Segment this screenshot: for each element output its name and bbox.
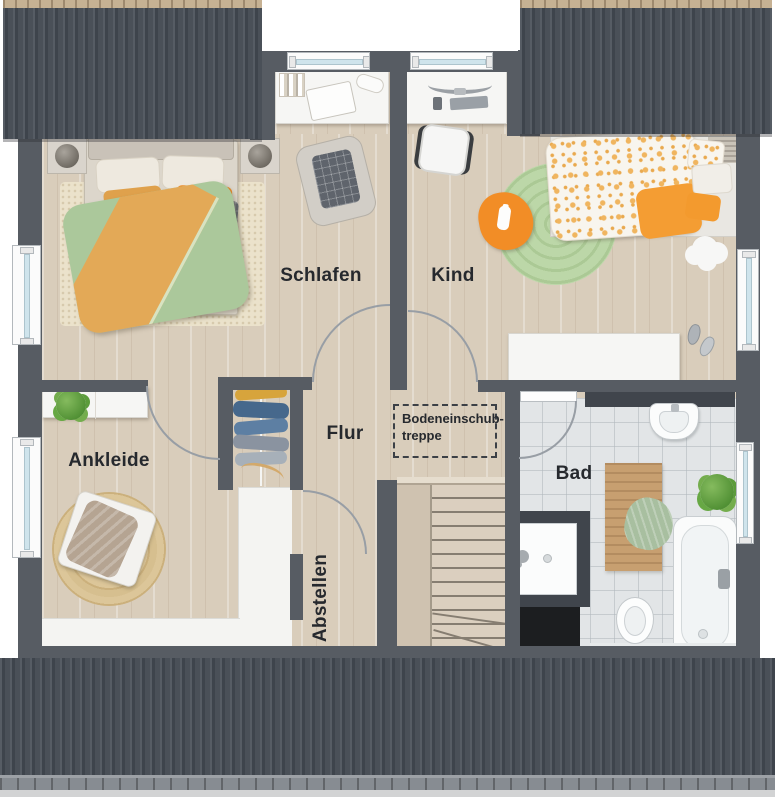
sink-tap xyxy=(671,404,679,412)
kids-pillow-orange xyxy=(684,192,721,222)
window-glass xyxy=(419,59,486,65)
window-cap xyxy=(742,344,756,351)
window-bad-right xyxy=(736,442,754,544)
window-glass xyxy=(743,451,748,537)
roof-top-left xyxy=(3,8,262,139)
wall-flur-left-lower xyxy=(290,554,303,620)
window-dormer-schlafen xyxy=(287,52,370,70)
window-cap xyxy=(20,338,34,345)
attic-hatch-line2: treppe xyxy=(402,428,495,445)
window-cap xyxy=(412,56,419,68)
roof-bottom xyxy=(0,658,775,775)
room-label-schlafen: Schlafen xyxy=(280,265,362,287)
floorplan: Schlafen Kind Flur Ankleide Abstellen Ba… xyxy=(0,0,775,797)
roof-shadow-right xyxy=(520,134,772,137)
kids-pillow-white xyxy=(691,163,733,196)
window-cap xyxy=(20,439,34,446)
window-cap xyxy=(486,56,493,68)
table-lamp-right xyxy=(248,144,272,168)
clothes-item-navy xyxy=(233,401,290,420)
bathtub-faucet xyxy=(718,569,730,589)
window-kind-right xyxy=(737,249,759,351)
window-cap xyxy=(739,537,752,544)
sink xyxy=(649,403,699,440)
kids-dresser xyxy=(508,333,680,382)
attic-hatch-line1: Bodeneinschub- xyxy=(402,411,495,428)
roof-bottom-edge xyxy=(0,790,775,797)
window-cap xyxy=(20,551,34,558)
window-cap xyxy=(739,444,752,451)
roof-ridge xyxy=(0,778,775,790)
desk-chair xyxy=(417,123,471,177)
window-glass xyxy=(296,59,363,65)
phone xyxy=(433,97,442,110)
room-label-flur: Flur xyxy=(326,423,363,445)
window-dormer-kind xyxy=(410,52,493,70)
knee-wall-storage-vertical xyxy=(238,487,292,658)
desk-books xyxy=(279,73,305,97)
bathtub xyxy=(673,516,737,658)
table-lamp-left xyxy=(55,144,79,168)
outer-wall-right xyxy=(736,132,760,660)
sink-basin xyxy=(659,411,689,433)
stairs-top-rail xyxy=(397,477,512,485)
room-label-abstellen: Abstellen xyxy=(310,554,332,642)
window-cap xyxy=(20,247,34,254)
window-cap xyxy=(742,251,756,258)
outer-wall-left xyxy=(18,130,42,660)
wall-flur-left xyxy=(290,377,303,490)
stairs-stringer xyxy=(397,485,432,658)
wall-stairs-left xyxy=(377,480,397,658)
attic-hatch-label-box: Bodeneinschub- treppe xyxy=(393,404,497,458)
wall-ankleide-top xyxy=(40,380,148,392)
window-glass xyxy=(24,254,30,338)
dormer-sky-cut xyxy=(262,0,518,51)
roof-top-right xyxy=(520,8,772,134)
cloud-side-table xyxy=(692,236,718,262)
window-schlafen-left xyxy=(12,245,41,345)
room-label-bad: Bad xyxy=(556,463,593,485)
window-glass xyxy=(24,447,30,550)
monitor-stand xyxy=(454,88,466,95)
room-label-ankleide: Ankleide xyxy=(68,450,150,472)
window-glass xyxy=(746,258,752,344)
bathtub-drain xyxy=(698,629,708,639)
potted-plant xyxy=(56,390,86,420)
partition-schlafen-kind xyxy=(390,68,407,390)
wall-closet-left xyxy=(218,377,233,490)
bathroom-plant xyxy=(700,474,734,510)
toilet-seat xyxy=(624,606,646,636)
window-cap xyxy=(289,56,296,68)
window-ankleide-left xyxy=(12,437,41,558)
room-label-kind: Kind xyxy=(431,265,474,287)
shower-drain xyxy=(543,554,552,563)
shower-wall-right xyxy=(577,511,590,607)
wall-bath-left xyxy=(505,388,520,658)
window-cap xyxy=(363,56,370,68)
roof-shadow-left xyxy=(3,139,262,142)
